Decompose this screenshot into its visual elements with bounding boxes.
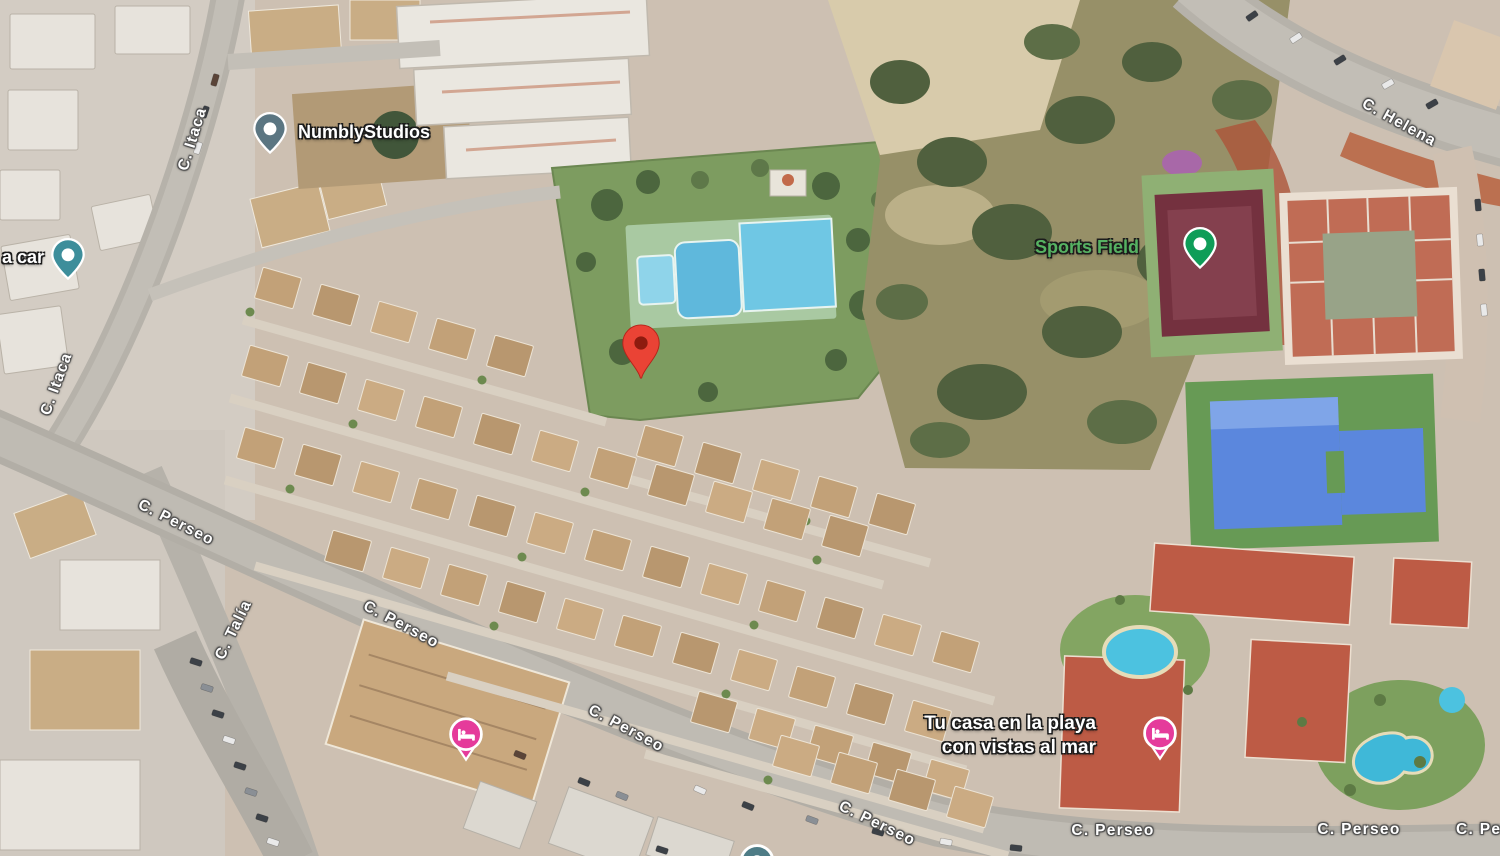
map-canvas[interactable]: C. Itaca C. Itaca C. Helena C. Perseo C.… bbox=[0, 0, 1500, 856]
place-pin-icon[interactable] bbox=[253, 112, 287, 154]
poi-label-tu-casa[interactable]: Tu casa en la playa con vistas al mar bbox=[924, 712, 1096, 760]
poi-label-sports-field[interactable]: Sports Field bbox=[1035, 237, 1139, 258]
lodging-pin-icon[interactable] bbox=[448, 717, 484, 761]
place-pin-icon[interactable] bbox=[738, 843, 776, 856]
map-marker-icon[interactable] bbox=[622, 324, 660, 379]
satellite-imagery bbox=[0, 0, 1500, 856]
place-pin-icon[interactable] bbox=[51, 238, 85, 280]
poi-label-a-car[interactable]: a car bbox=[2, 247, 44, 268]
place-pin-icon[interactable] bbox=[1183, 227, 1217, 269]
poi-label-numblystudios[interactable]: NumblyStudios bbox=[298, 122, 430, 143]
lodging-pin-icon[interactable] bbox=[1142, 716, 1178, 760]
